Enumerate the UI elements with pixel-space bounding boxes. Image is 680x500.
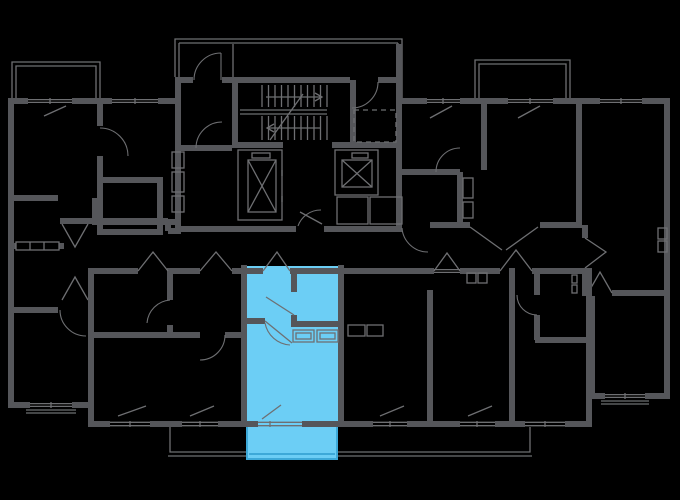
window-sill xyxy=(601,401,649,404)
elevator-left-lintel xyxy=(252,153,270,158)
internal-window xyxy=(16,242,59,250)
top-left-balcony xyxy=(12,62,100,98)
window-glazing-icon xyxy=(182,421,218,427)
elevator-x-icon xyxy=(248,160,276,212)
core-room-door-arc-icon xyxy=(196,122,222,148)
highlighted-unit[interactable] xyxy=(242,266,338,459)
floor-plan-canvas xyxy=(0,0,680,500)
window-glazing-icon xyxy=(30,402,72,408)
elevators xyxy=(238,150,402,224)
highlighted-unit-area[interactable] xyxy=(242,266,338,426)
internal-window-sashes xyxy=(30,242,44,250)
top-right-balcony xyxy=(475,60,570,98)
unit-top-right-apartment[interactable] xyxy=(402,104,576,222)
window-glazing-icon xyxy=(373,421,407,427)
unit-far-right-apartment[interactable] xyxy=(584,230,664,393)
window-glazing-icon xyxy=(605,393,645,399)
window-glazing-icon xyxy=(110,421,150,427)
elevator-x-icon xyxy=(342,160,372,187)
stair-landing-lines xyxy=(240,110,327,114)
window-sill xyxy=(26,410,76,413)
staircase xyxy=(240,85,327,140)
elevator-right-lintel xyxy=(352,153,368,158)
unit-d[interactable] xyxy=(347,274,427,421)
unit-top-left-apartment[interactable] xyxy=(14,104,174,219)
bottom-balcony-strip xyxy=(168,427,532,456)
window-glazing-icon xyxy=(600,98,642,104)
entry-glazing xyxy=(434,270,460,273)
unit-f[interactable] xyxy=(515,274,586,421)
unit-b[interactable] xyxy=(173,274,239,421)
double-door-leaves xyxy=(470,227,538,250)
window-glazing-icon xyxy=(427,98,460,104)
stair-treads-icon xyxy=(262,85,327,140)
dashed-shaft-zone xyxy=(354,110,396,142)
window-glazing-icon xyxy=(508,98,553,104)
door-arc-icon xyxy=(402,228,428,252)
unit-bottom-left-apartment[interactable] xyxy=(14,249,88,402)
window-glazing-icon xyxy=(112,98,158,104)
window-glazing-icon xyxy=(28,98,72,104)
unit-a[interactable] xyxy=(94,274,167,421)
unit-e[interactable] xyxy=(433,274,509,421)
window-glazing-icon xyxy=(525,421,565,427)
window-glazing-icon xyxy=(460,421,495,427)
machine-room-left xyxy=(337,197,368,224)
vestibule-door-arc-icon xyxy=(194,53,221,80)
